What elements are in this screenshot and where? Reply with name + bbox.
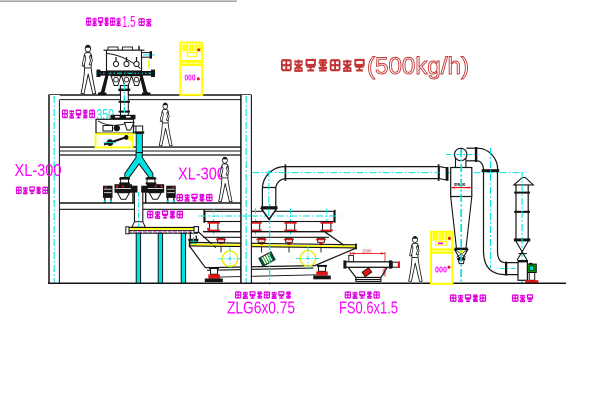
svg-text:000: 000 <box>185 74 196 83</box>
svg-text:XL-300: XL-300 <box>15 160 62 180</box>
svg-text:1.5: 1.5 <box>122 14 136 31</box>
svg-text:FS0.6x1.5: FS0.6x1.5 <box>339 298 398 318</box>
svg-text:1500: 1500 <box>362 248 372 253</box>
svg-text:(500kg/h): (500kg/h) <box>367 53 469 80</box>
svg-text:ZLG6x0.75: ZLG6x0.75 <box>227 298 295 318</box>
svg-text:XL-300: XL-300 <box>178 164 225 184</box>
svg-text:Φ500: Φ500 <box>454 182 466 187</box>
svg-text:000: 000 <box>435 266 447 275</box>
